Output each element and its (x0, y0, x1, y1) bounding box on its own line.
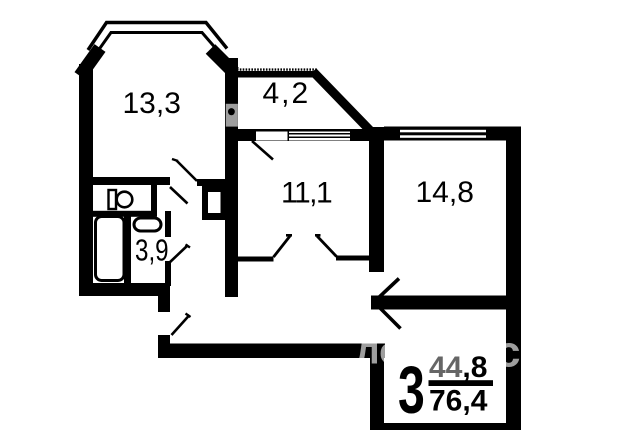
svg-text:14,8: 14,8 (416, 176, 474, 209)
svg-text:11,1: 11,1 (281, 177, 332, 210)
svg-text:ло: ло (356, 331, 403, 373)
svg-text:4,2: 4,2 (263, 77, 311, 110)
svg-text:76,4: 76,4 (429, 385, 488, 418)
svg-text:с: с (496, 328, 520, 377)
svg-text:13,3: 13,3 (123, 87, 181, 120)
svg-text:3,9: 3,9 (135, 233, 169, 268)
